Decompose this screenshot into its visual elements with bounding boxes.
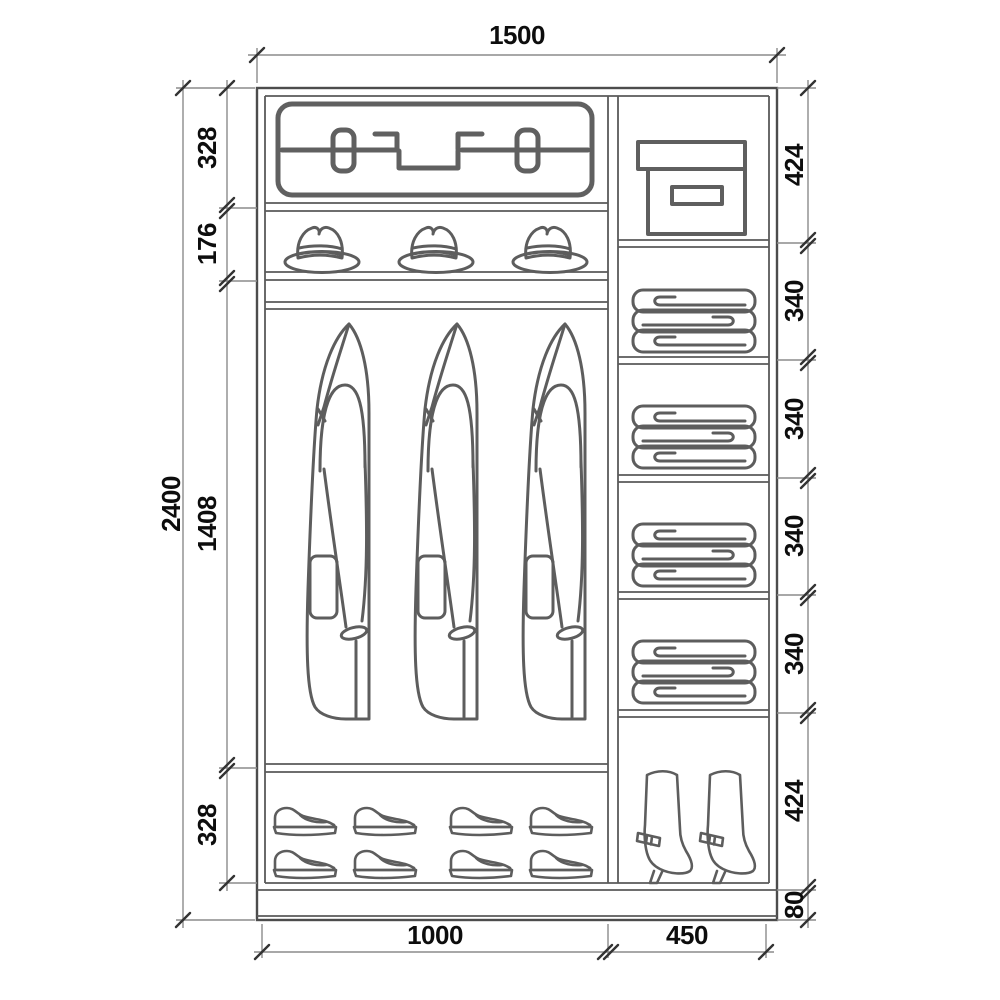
boot-icon <box>700 771 755 883</box>
wardrobe-panels <box>257 96 777 916</box>
linen-stack-icon <box>633 641 755 703</box>
shoe-icon <box>274 808 336 835</box>
linen-stack-icon <box>633 524 755 586</box>
shoe-icon <box>274 851 336 878</box>
dim-label-overall-width: 1500 <box>489 20 545 50</box>
dim-label-right-section-2: 340 <box>779 280 809 322</box>
wardrobe-outline <box>257 88 777 920</box>
shoe-icon <box>530 808 592 835</box>
hat-icon <box>285 227 359 272</box>
linen-stack-icon <box>633 290 755 352</box>
dim-label-right-section-1: 424 <box>779 143 809 186</box>
dim-label-left-section-3: 1408 <box>192 496 222 552</box>
linen-stack-icon <box>633 406 755 468</box>
dim-label-right-section-4: 340 <box>779 515 809 557</box>
wardrobe-dimension-diagram: 1500 2400 328 176 1408 328 424 340 340 3… <box>0 0 1000 1000</box>
dim-label-overall-height: 2400 <box>156 476 186 532</box>
shoe-icon <box>450 851 512 878</box>
suitcase-icon <box>278 104 592 195</box>
shoe-icon <box>354 808 416 835</box>
coats-row <box>307 324 585 719</box>
dim-label-left-column-width: 1000 <box>407 920 463 950</box>
dim-label-left-section-4: 328 <box>192 804 222 846</box>
blueprint-svg: 1500 2400 328 176 1408 328 424 340 340 3… <box>0 0 1000 1000</box>
hat-icon <box>399 227 473 272</box>
dim-label-left-section-1: 328 <box>192 127 222 169</box>
shoe-icon <box>450 808 512 835</box>
storage-box-icon <box>638 142 745 234</box>
dim-label-right-section-3: 340 <box>779 398 809 440</box>
coat-icon <box>523 324 585 719</box>
shoe-icon <box>530 851 592 878</box>
coat-icon <box>307 324 369 719</box>
coat-icon <box>415 324 477 719</box>
hat-icon <box>513 227 587 272</box>
boots-pair <box>637 771 755 883</box>
wardrobe-structure <box>257 88 777 920</box>
dim-label-right-section-6: 424 <box>779 779 809 822</box>
dim-label-right-column-width: 450 <box>666 920 708 950</box>
hats-row <box>285 227 587 272</box>
dim-label-left-section-2: 176 <box>192 223 222 265</box>
shoe-icon <box>354 851 416 878</box>
boot-icon <box>637 771 692 883</box>
dim-label-right-section-5: 340 <box>779 633 809 675</box>
dim-label-right-section-7: 80 <box>779 891 809 919</box>
shoes-grid <box>274 808 592 878</box>
